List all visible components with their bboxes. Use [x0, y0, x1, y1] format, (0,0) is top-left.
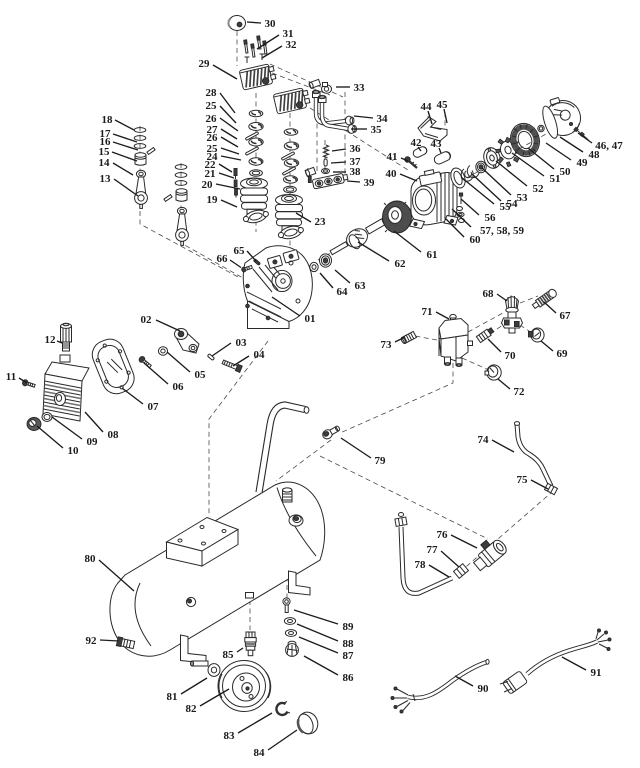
- svg-text:62: 62: [395, 258, 407, 270]
- svg-text:74: 74: [478, 434, 490, 446]
- svg-text:53: 53: [517, 192, 529, 204]
- svg-text:06: 06: [173, 381, 185, 393]
- svg-text:91: 91: [591, 667, 602, 679]
- svg-text:25: 25: [206, 100, 218, 112]
- svg-text:73: 73: [381, 339, 393, 351]
- svg-text:75: 75: [517, 474, 529, 486]
- svg-text:33: 33: [354, 82, 366, 94]
- svg-text:76: 76: [437, 529, 449, 541]
- svg-text:88: 88: [343, 638, 355, 650]
- svg-text:43: 43: [431, 138, 443, 150]
- svg-text:84: 84: [254, 747, 266, 759]
- svg-text:79: 79: [375, 455, 387, 467]
- svg-text:17: 17: [100, 128, 112, 140]
- svg-text:20: 20: [202, 179, 214, 191]
- svg-text:09: 09: [87, 436, 99, 448]
- svg-text:83: 83: [224, 730, 236, 742]
- svg-text:65: 65: [234, 245, 246, 257]
- svg-text:80: 80: [85, 553, 97, 565]
- svg-text:19: 19: [207, 194, 219, 206]
- svg-text:82: 82: [186, 703, 198, 715]
- svg-text:55: 55: [500, 201, 512, 213]
- svg-text:63: 63: [355, 280, 367, 292]
- svg-text:66: 66: [217, 253, 229, 265]
- svg-text:38: 38: [350, 166, 362, 178]
- svg-text:11: 11: [6, 371, 16, 383]
- svg-text:30: 30: [265, 18, 277, 30]
- svg-text:90: 90: [478, 683, 490, 695]
- svg-text:60: 60: [470, 234, 482, 246]
- svg-text:23: 23: [315, 216, 327, 228]
- svg-text:89: 89: [343, 621, 355, 633]
- svg-text:81: 81: [167, 691, 178, 703]
- svg-text:12: 12: [45, 334, 57, 346]
- svg-text:29: 29: [199, 58, 211, 70]
- svg-text:18: 18: [102, 114, 114, 126]
- svg-text:49: 49: [577, 157, 589, 169]
- svg-text:69: 69: [557, 348, 569, 360]
- svg-text:57, 58, 59: 57, 58, 59: [480, 225, 525, 237]
- svg-text:14: 14: [99, 157, 111, 169]
- svg-text:41: 41: [387, 151, 398, 163]
- svg-text:85: 85: [223, 649, 235, 661]
- svg-text:39: 39: [364, 177, 376, 189]
- svg-text:25: 25: [207, 143, 219, 155]
- svg-text:45: 45: [437, 99, 449, 111]
- svg-text:05: 05: [195, 369, 207, 381]
- svg-text:51: 51: [550, 173, 561, 185]
- svg-text:42: 42: [411, 137, 423, 149]
- svg-text:08: 08: [108, 429, 120, 441]
- svg-text:68: 68: [483, 288, 495, 300]
- svg-text:92: 92: [86, 635, 98, 647]
- svg-text:56: 56: [485, 212, 497, 224]
- svg-text:32: 32: [286, 39, 298, 51]
- svg-text:52: 52: [533, 183, 545, 195]
- svg-text:04: 04: [254, 349, 266, 361]
- svg-text:77: 77: [427, 544, 439, 556]
- svg-text:87: 87: [343, 650, 355, 662]
- svg-text:13: 13: [100, 173, 112, 185]
- svg-text:28: 28: [206, 87, 218, 99]
- svg-text:10: 10: [68, 445, 80, 457]
- svg-text:70: 70: [505, 350, 517, 362]
- svg-text:27: 27: [207, 124, 219, 136]
- svg-text:01: 01: [305, 313, 316, 325]
- svg-text:86: 86: [343, 672, 355, 684]
- svg-text:61: 61: [427, 249, 438, 261]
- svg-text:78: 78: [415, 559, 427, 571]
- svg-text:36: 36: [350, 143, 362, 155]
- svg-text:64: 64: [337, 286, 349, 298]
- svg-text:02: 02: [141, 314, 153, 326]
- svg-text:48: 48: [589, 149, 601, 161]
- svg-text:26: 26: [206, 113, 218, 125]
- svg-text:67: 67: [560, 310, 572, 322]
- svg-text:03: 03: [236, 337, 248, 349]
- svg-text:72: 72: [514, 386, 526, 398]
- svg-text:07: 07: [148, 401, 160, 413]
- svg-text:50: 50: [560, 166, 572, 178]
- svg-text:71: 71: [422, 306, 433, 318]
- svg-text:35: 35: [371, 124, 383, 136]
- svg-text:40: 40: [386, 168, 398, 180]
- svg-text:44: 44: [421, 101, 433, 113]
